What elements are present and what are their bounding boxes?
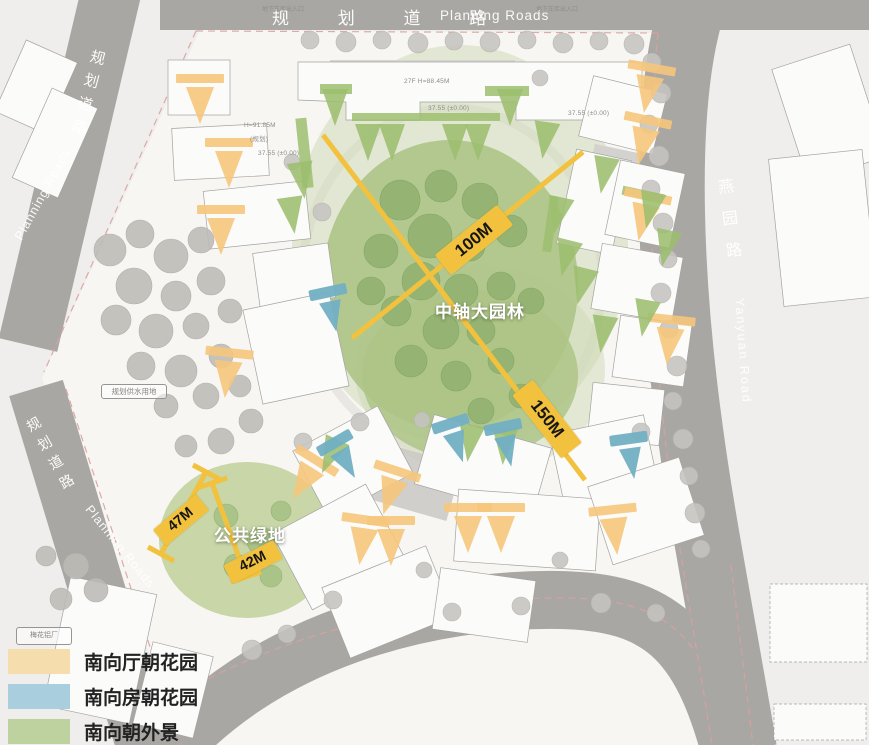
building-annotation: 37.55 (±0.00) [258,150,299,157]
tree-icon [692,540,710,558]
tree-icon [188,227,214,253]
site-plan: 规 划 道 路 Planning Roads 地下车库出入口 地下车库出入口 规… [0,0,869,745]
tree-icon [165,355,197,387]
tree-icon [36,546,56,566]
tree-icon [193,383,219,409]
plant-note-box: 梅花铝厂 [16,627,72,645]
tree-icon [116,268,152,304]
tree-icon [512,597,530,615]
building [612,315,692,386]
tree-icon [468,398,494,424]
tree-icon [518,31,536,49]
tree-icon [651,283,671,303]
garage-entrance-note: 地下车库出入口 [262,4,304,13]
tree-icon [441,361,471,391]
tree-icon [218,299,242,323]
tree-icon [552,552,568,568]
water-land-note-box: 规划供水用地 [101,384,167,399]
building-annotation: 37.55 (±0.00) [428,105,469,112]
tree-icon [324,591,342,609]
garage-entrance-note: 地下车库出入口 [536,4,578,13]
legend-item-south-hall-garden: 南向厅朝花园 [8,648,198,675]
tree-icon [685,503,705,523]
tree-icon [357,277,385,305]
tree-icon [414,412,430,428]
building-annotation: 27F H=88.45M [404,78,450,85]
legend-label: 南向房朝花园 [84,683,198,710]
tree-icon [480,32,500,52]
building [774,704,866,740]
tree-icon [50,588,72,610]
tree-icon [553,33,573,53]
tree-icon [364,234,398,268]
tree-icon [139,314,173,348]
tree-icon [242,640,262,660]
tree-icon [336,32,356,52]
building-annotation: (规划) [250,133,268,143]
tree-icon [667,356,687,376]
tree-icon [197,267,225,295]
building-annotation: H=91.85M [244,122,276,129]
legend-item-south-room-garden: 南向房朝花园 [8,683,198,710]
legend-label: 南向朝外景 [84,718,179,745]
legend-swatch-green [8,719,70,744]
tree-icon [301,31,319,49]
legend-swatch-orange [8,649,70,674]
tree-icon [271,501,291,521]
building [769,149,869,306]
tree-icon [591,593,611,613]
tree-icon [154,239,188,273]
tree-icon [408,33,428,53]
tree-icon [624,34,644,54]
tree-icon [127,352,155,380]
tree-icon [445,32,463,50]
tree-icon [373,31,391,49]
central-garden-label: 中轴大园林 [435,298,525,323]
tree-icon [84,578,108,602]
tree-icon [443,603,461,621]
tree-icon [590,32,608,50]
tree-icon [208,428,234,454]
tree-icon [395,345,427,377]
legend-swatch-blue [8,684,70,709]
tree-icon [664,392,682,410]
public-green-label: 公共绿地 [214,522,286,547]
tree-icon [416,562,432,578]
tree-icon [680,467,698,485]
building-annotation: 37.55 (±0.00) [568,110,609,117]
tree-icon [101,305,131,335]
tree-icon [239,409,263,433]
tree-icon [126,220,154,248]
building [770,584,867,662]
tree-icon [487,272,515,300]
tree-icon [183,313,209,339]
tree-icon [649,146,669,166]
south-facing-green-bar [352,113,500,121]
road-label-top-en: Planning Roads [440,8,549,23]
tree-icon [425,170,457,202]
tree-icon [313,203,331,221]
tree-icon [673,429,693,449]
tree-icon [161,281,191,311]
tree-icon [175,435,197,457]
tree-icon [63,553,89,579]
tree-icon [532,70,548,86]
tree-icon [647,604,665,622]
tree-icon [94,234,126,266]
legend-item-south-outward-view: 南向朝外景 [8,718,179,745]
tree-icon [278,625,296,643]
tree-icon [351,413,369,431]
legend-label: 南向厅朝花园 [84,648,198,675]
